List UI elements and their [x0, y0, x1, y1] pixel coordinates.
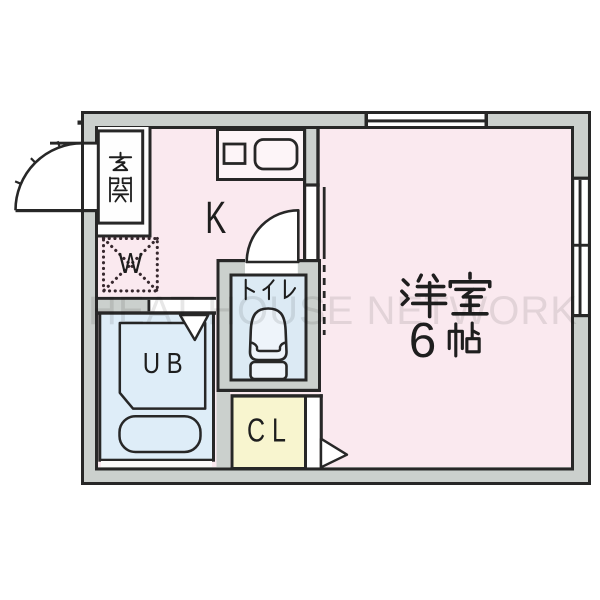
- svg-text:K: K: [205, 192, 226, 243]
- svg-text:U B: U B: [143, 348, 183, 380]
- svg-text:C L: C L: [247, 412, 286, 449]
- svg-text:HEAT HOUSE NETWORK: HEAT HOUSE NETWORK: [88, 289, 578, 333]
- svg-text:W: W: [119, 248, 144, 280]
